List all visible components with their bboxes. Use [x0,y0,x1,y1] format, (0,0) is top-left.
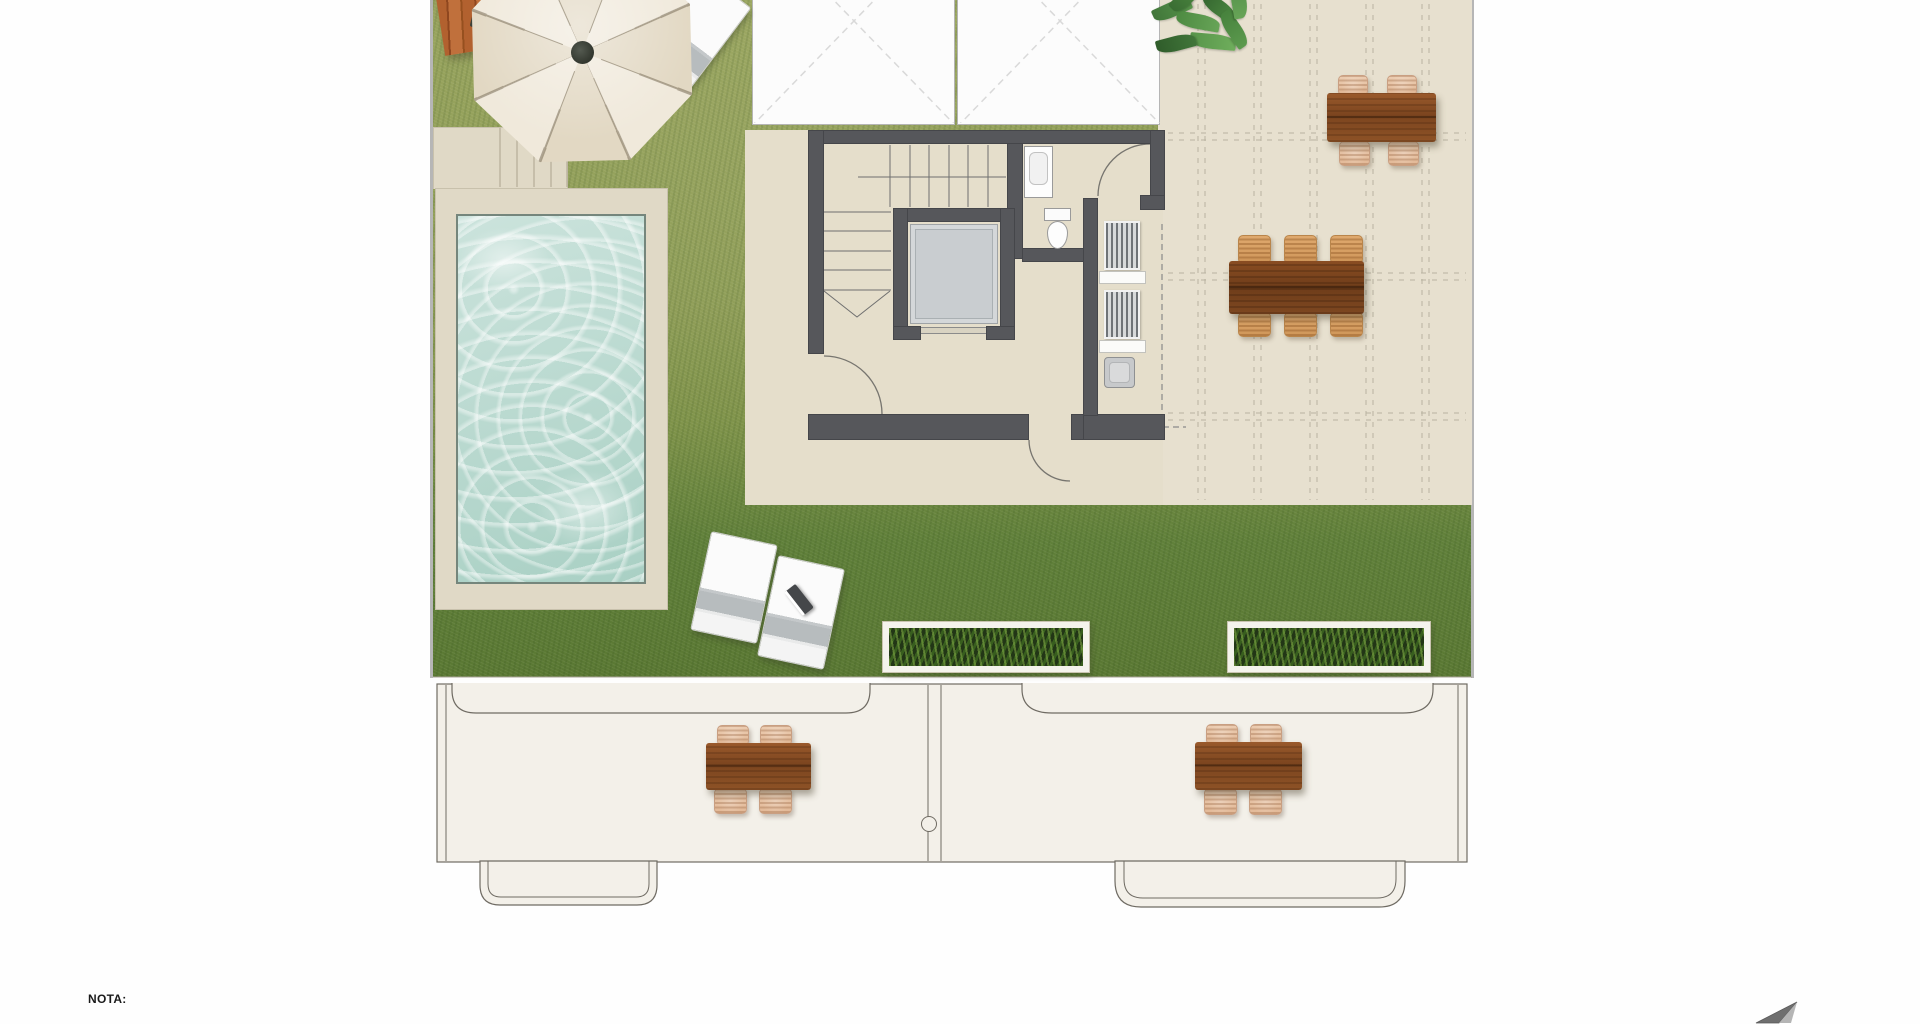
chair [1339,141,1370,166]
dining-table [1327,93,1436,142]
elevator-wall [893,208,1015,222]
utility-appliance [1104,357,1135,388]
toilet-tank [1044,208,1071,221]
chair [1284,312,1317,337]
chair [759,788,792,814]
chair [1330,312,1363,337]
wall-segment [1140,195,1165,210]
elevator-wall [893,326,921,340]
wall-segment [1083,414,1165,440]
left-terrace-step [480,861,657,905]
shelf [1099,271,1146,284]
chair [1204,788,1237,815]
dining-table [706,743,811,790]
chair [1249,788,1282,815]
chair [1238,235,1271,264]
wall-segment [808,414,1029,440]
elevator-door-sill [921,327,986,334]
sink-basin [1029,152,1048,185]
elevator-wall [1000,208,1015,340]
planter-box [1227,621,1431,673]
wall-segment [808,130,824,354]
lower-terraces [433,677,1472,907]
planter-box [882,621,1090,673]
note-label: NOTA: [88,992,127,1006]
planter-plants [889,628,1083,666]
louver-unit [1104,221,1140,270]
left-terrace-recess [452,683,870,713]
wall-segment [1022,248,1085,262]
plan-left-border [430,0,433,678]
elevator-wall [986,326,1015,340]
planter-plants [1234,628,1424,666]
wall-segment [1083,198,1098,416]
north-arrow-icon [1756,1002,1797,1023]
skylight-panel-right [957,0,1160,125]
shelf [1099,340,1146,353]
lower-terrace-outline [437,684,1467,862]
right-terrace-recess [1022,683,1433,713]
elevator-cab [910,224,998,324]
dining-table [1229,261,1364,314]
louver-unit [1104,290,1140,339]
chair [1238,312,1271,337]
chair [714,788,747,814]
swimming-pool [456,214,646,584]
dining-table [1195,742,1302,790]
wall-segment [808,130,1165,144]
parasol-hub [571,41,594,64]
chair [1284,235,1317,264]
floor-plan: NOTA: [0,0,1920,1024]
skylight-panel-left [752,0,955,125]
chair [1388,141,1419,166]
bathroom-sink [1024,146,1053,198]
right-terrace-step [1115,861,1405,907]
wall-segment [1150,130,1165,198]
divider-notch [922,817,937,832]
elevator-wall [893,208,908,340]
chair [1330,235,1363,264]
